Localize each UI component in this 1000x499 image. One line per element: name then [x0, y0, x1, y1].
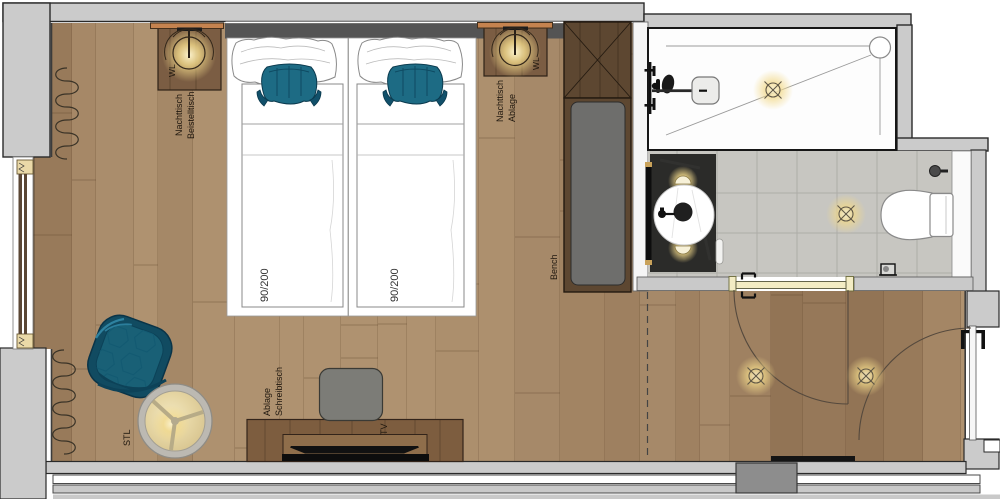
svg-text:Nachttisch: Nachttisch: [495, 80, 505, 122]
svg-text:90/200: 90/200: [259, 268, 271, 302]
svg-text:90/200: 90/200: [389, 268, 401, 302]
svg-text:Bench: Bench: [549, 254, 559, 280]
svg-text:Schreibtisch: Schreibtisch: [274, 367, 284, 416]
svg-text:WL: WL: [167, 64, 177, 77]
svg-text:STL: STL: [122, 429, 132, 446]
svg-text:Beistelltisch: Beistelltisch: [186, 91, 196, 139]
svg-text:Ablage: Ablage: [262, 388, 272, 416]
svg-text:Ablage: Ablage: [507, 94, 517, 122]
svg-text:TV: TV: [379, 423, 389, 435]
svg-text:Nachttisch: Nachttisch: [174, 94, 184, 136]
svg-text:WL: WL: [531, 57, 541, 70]
